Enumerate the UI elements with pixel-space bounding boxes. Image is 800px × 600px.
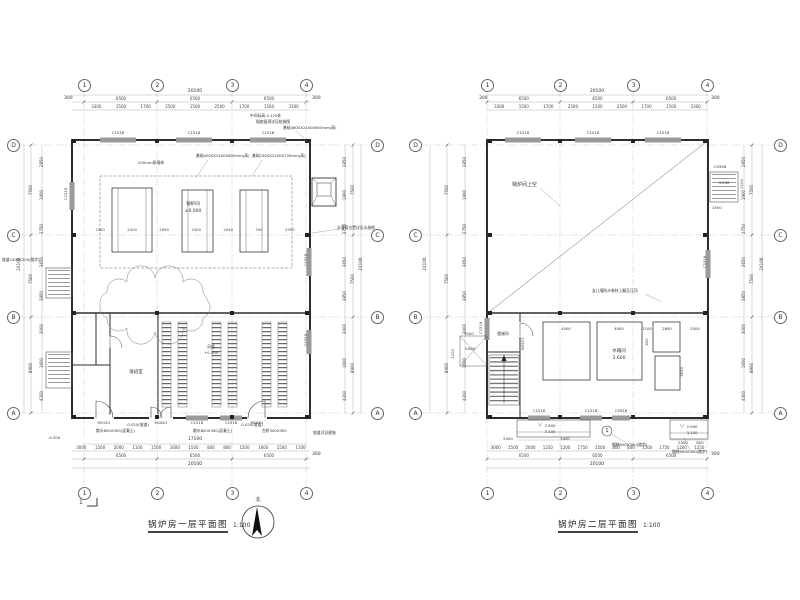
dim-chain-bottom-detail: 3000150020001100150016001500800800150016… xyxy=(72,446,310,450)
dim-landing: 1200 xyxy=(451,345,455,363)
dim-text: 700 xyxy=(255,228,262,232)
dim-edge: 300 xyxy=(312,453,321,458)
dim-chain-top-spans: 650065006500 xyxy=(84,97,306,101)
note-ramp-side: 坡道1500X300(踏步) xyxy=(2,258,40,262)
dim-text: 4300 xyxy=(742,391,746,401)
grid-bubble: 2 xyxy=(151,487,164,500)
plan2-title: 锅炉房二层平面图 xyxy=(558,520,638,533)
plan1-boiler-foundations xyxy=(100,176,292,268)
dim-side-total: 24100 xyxy=(760,255,764,273)
grid-bubble: B xyxy=(7,311,20,324)
dim-edge: 300 xyxy=(711,453,720,458)
dim-text: 1600 xyxy=(258,446,268,450)
dim-text: 1100 xyxy=(132,446,142,450)
level-mark: -0.300 xyxy=(48,436,60,440)
room-label-tank: 水箱间 xyxy=(612,350,626,355)
plan1-title-row: 锅炉房一层平面图1:100 xyxy=(148,512,250,531)
note-foundation: 基础4600X2400X600mm(高) xyxy=(283,126,337,130)
note-parapet: 女儿墙防水卷材上翻至压顶 xyxy=(592,289,638,293)
dim-text: 1500 xyxy=(264,105,274,109)
level-mark: 3.600 xyxy=(465,347,476,351)
dim-text: 1250 xyxy=(543,446,553,450)
level-mark: 2.900 xyxy=(687,425,698,429)
column-marks xyxy=(72,139,707,419)
dim-text: 3850 xyxy=(40,291,44,301)
grid-bubble: 1 xyxy=(481,487,494,500)
dim-text: 8900 xyxy=(351,363,355,373)
dim-text: 1700 xyxy=(543,105,553,109)
dim-text: 3850 xyxy=(343,291,347,301)
dim-canopy: 800 xyxy=(696,441,703,445)
dim-text: 1500 xyxy=(592,105,602,109)
level-mark: ±0.000 xyxy=(185,210,202,215)
dim-text: 6500 xyxy=(116,454,126,458)
dim-bottom-inner: 17100 xyxy=(188,438,202,443)
door-tag: M0921 xyxy=(521,335,525,353)
dim-text: 2750 xyxy=(40,224,44,234)
dim-text: 6500 xyxy=(116,97,126,101)
dim-text: 1700 xyxy=(239,105,249,109)
dim-text: 7500 xyxy=(445,274,449,284)
plan1-title: 锅炉房一层平面图 xyxy=(148,520,228,533)
dim-chain-bottom-spans: 650065006500 xyxy=(487,454,708,458)
plan2-tank-equipment xyxy=(543,322,680,390)
dim-text: 1500 xyxy=(239,446,249,450)
dim-text: 1500 xyxy=(666,105,676,109)
dim-chain-top-detail: 330015001700250015002500170015003300 xyxy=(487,105,708,109)
section-mark-line xyxy=(87,498,97,506)
dim-text: 7500 xyxy=(29,274,33,284)
window-tag: C1518 xyxy=(587,131,599,135)
note-drain: 水落管位置详见水施图 xyxy=(337,226,375,230)
plan1-exterior-ramps xyxy=(46,268,72,388)
dim-text: 1750 xyxy=(578,446,588,450)
dim-text: 1500 xyxy=(151,446,161,450)
plan1-doors xyxy=(94,336,267,422)
dim-text: 2500 xyxy=(568,105,578,109)
dim-text: 6500 xyxy=(666,97,676,101)
level-mark: 3.600 xyxy=(613,357,626,362)
dim-canopy: 2500 xyxy=(678,441,688,445)
cad-linework xyxy=(0,0,800,600)
grid-bubble: 4 xyxy=(300,79,313,92)
window-tag: C1518 xyxy=(703,253,707,271)
note-ramp: -0.020(坡道) xyxy=(240,423,263,427)
window-tag: C0918 xyxy=(615,409,627,413)
room-label-duty: 值班室 xyxy=(129,371,143,376)
grid-bubble: B xyxy=(774,311,787,324)
grid-bubble: C xyxy=(409,229,422,242)
grid-bubble: D xyxy=(409,139,422,152)
blueprint-canvas: 1 2 3 4 1 2 3 4 D C B A D C B A 1 2 3 4 … xyxy=(0,0,800,600)
dim-equip: 3600 xyxy=(680,363,684,381)
grid-bubble: A xyxy=(371,407,384,420)
note-foundation: 基础2300X2200X700mm(高) xyxy=(252,154,306,158)
dim-text: 7500 xyxy=(29,185,33,195)
note-apron: 散水800X300(混凝土) xyxy=(193,429,232,433)
dim-text: 1600 xyxy=(40,358,44,368)
dim-text: 7500 xyxy=(351,185,355,195)
dim-side-total: 24100 xyxy=(423,255,427,273)
note-apron: 散水800X300(混凝土) xyxy=(96,429,135,433)
dim-text: 2850 xyxy=(742,157,746,167)
dim-text: 1500 xyxy=(116,105,126,109)
window-tag: C1518 xyxy=(191,421,203,425)
dim-text: 2500 xyxy=(165,105,175,109)
room-label-duct: 风道 xyxy=(207,345,215,349)
grid-bubble: A xyxy=(774,407,787,420)
room-label-stair: 楼梯间 xyxy=(497,332,508,336)
dim-chain-left-detail: 28501900275036503850300016004300 xyxy=(461,145,470,413)
dim-text: 3000 xyxy=(742,324,746,334)
grid-bubble: A xyxy=(409,407,422,420)
dim-text: 2400 xyxy=(127,228,137,232)
dim-text: 3000 xyxy=(491,446,501,450)
dim-chain-right-spans: 750075008900 xyxy=(748,145,757,413)
grid-bubble: D xyxy=(774,139,787,152)
grid-bubble: 4 xyxy=(701,487,714,500)
window-tag: C1518 xyxy=(517,131,529,135)
grid-bubble: B xyxy=(371,311,384,324)
window-tag: C1518 xyxy=(585,409,597,413)
grid-bubble: C xyxy=(774,229,787,242)
dim-text: 1600 xyxy=(170,446,180,450)
level-mark: 3.100 xyxy=(687,431,698,435)
door-tag: M1521 xyxy=(98,421,111,425)
window-tag: C1518 xyxy=(262,131,274,135)
note-level: 中间标高-0.125处 xyxy=(250,114,281,118)
dim-text: 1600 xyxy=(742,358,746,368)
window-tag: C1518 xyxy=(225,421,237,425)
dim-text: 1500 xyxy=(508,446,518,450)
dim-lines xyxy=(24,95,762,468)
dim-text: 1500 xyxy=(95,446,105,450)
grid-bubble: 3 xyxy=(226,79,239,92)
dim-chain-top-detail: 330015001700250015002500170015003300 xyxy=(84,105,306,109)
dim-text: 3300 xyxy=(91,105,101,109)
window-tag: C1518 xyxy=(479,319,483,337)
window-tag: C1518 xyxy=(64,185,68,203)
dim-text: 8900 xyxy=(750,363,754,373)
dim-text: 2750 xyxy=(742,224,746,234)
dim-text: 1700 xyxy=(641,105,651,109)
dim-equip: 4000 xyxy=(561,327,571,331)
dim-side-total: 24100 xyxy=(359,255,363,273)
dim-chain-bottom-spans: 650065006500 xyxy=(84,454,306,458)
dim-edge: 300 xyxy=(64,97,73,102)
dim-ticks xyxy=(30,101,754,461)
dim-chain-top-spans: 650065006500 xyxy=(487,97,708,101)
plan1-scale: 1:100 xyxy=(233,522,250,529)
dim-text: 3300 xyxy=(494,105,504,109)
dim-text: 6500 xyxy=(519,454,529,458)
dim-text: 6500 xyxy=(264,454,274,458)
room-label-void: 锅炉间上空 xyxy=(512,183,537,188)
note-slope: 坡道详见建施 xyxy=(313,431,336,435)
dim-equip: 2600 xyxy=(662,327,672,331)
dim-text: 3650 xyxy=(40,257,44,267)
room-label-boiler-hall: 锅炉间 xyxy=(186,203,200,208)
dim-text: 7500 xyxy=(750,274,754,284)
grid-bubble: A xyxy=(7,407,20,420)
dim-text: 2850 xyxy=(463,157,467,167)
dim-text: 7500 xyxy=(750,185,754,195)
dim-text: 3000 xyxy=(76,446,86,450)
grid-bubble: 4 xyxy=(701,79,714,92)
dim-text: 6500 xyxy=(264,97,274,101)
dim-platform: 2100 xyxy=(740,175,744,193)
plan2-title-row: 锅炉房二层平面图1:100 xyxy=(558,512,660,531)
dim-text: 3650 xyxy=(343,257,347,267)
door-tag: M1821 xyxy=(155,421,168,425)
dim-text: 6500 xyxy=(666,454,676,458)
north-label: 北 xyxy=(255,498,260,503)
window-tag: C1518 xyxy=(533,409,545,413)
plan1-walls xyxy=(72,140,310,418)
dim-total-bottom: 20100 xyxy=(590,463,604,468)
dim-chain-left-detail: 28501900275036503850300016004300 xyxy=(38,145,47,413)
dim-text: 7500 xyxy=(351,274,355,284)
note-wall: 200mm厚墙体 xyxy=(138,161,164,165)
dim-text: 2500 xyxy=(285,228,295,232)
detail-mark-number: 1 xyxy=(605,429,608,434)
dim-text: 2850 xyxy=(40,157,44,167)
level-mark: +0.300 xyxy=(204,351,218,355)
dim-edge: 300 xyxy=(312,97,321,102)
note-ladder: 钢梯500X300(踏步) xyxy=(672,450,707,454)
dim-text: 1600 xyxy=(463,358,467,368)
grid-bubble: 3 xyxy=(627,79,640,92)
level-mark: 4.000 xyxy=(719,181,730,185)
note-foundation: 基础4000X2400X600mm(高) xyxy=(196,154,250,158)
dim-text: 1500 xyxy=(519,105,529,109)
dim-equip: 4000 xyxy=(614,327,624,331)
plan2-roof-platform xyxy=(710,172,738,202)
dim-text: 6500 xyxy=(592,454,602,458)
dim-chain-left-spans: 750075008900 xyxy=(443,145,452,413)
dim-chain-right-spans: 750075008900 xyxy=(349,145,358,413)
dim-text: 6500 xyxy=(190,97,200,101)
dim-text: 3650 xyxy=(742,257,746,267)
dim-text: 3300 xyxy=(288,105,298,109)
dim-text: 2500 xyxy=(215,105,225,109)
level-mark: 3.100 xyxy=(545,430,556,434)
dim-landing: 1500 xyxy=(464,332,474,336)
grid-bubble: C xyxy=(371,229,384,242)
grid-bubble: 3 xyxy=(226,487,239,500)
dim-text: 3000 xyxy=(40,324,44,334)
dim-text: 6500 xyxy=(592,97,602,101)
dim-text: 800 xyxy=(207,446,215,450)
dim-text: 2650 xyxy=(159,228,169,232)
dim-total-top: 20100 xyxy=(590,90,604,95)
dim-text: 2500 xyxy=(617,105,627,109)
dim-text: 3000 xyxy=(343,324,347,334)
dim-equip: 1100 xyxy=(642,327,652,331)
dim-total-bottom: 20100 xyxy=(188,463,202,468)
dim-text: 1500 xyxy=(188,446,198,450)
note-ramp: -0.020(坡道) xyxy=(126,423,149,427)
dim-chain-hall: 150024002650240029407002500 xyxy=(84,228,306,232)
dim-edge: 300 xyxy=(479,97,488,102)
window-tag: C1518 xyxy=(188,131,200,135)
dim-text: 1500 xyxy=(95,228,105,232)
dim-text: 4300 xyxy=(343,391,347,401)
window-tag: C1518 xyxy=(304,331,308,349)
dim-text: 1900 xyxy=(40,190,44,200)
note-steps: 台阶300X300 xyxy=(262,429,287,433)
dim-text: 3850 xyxy=(742,291,746,301)
dim-equip: 2000 xyxy=(690,327,700,331)
dim-text: 3300 xyxy=(691,105,701,109)
grid-bubble: 4 xyxy=(300,487,313,500)
dim-text: 1100 xyxy=(295,446,305,450)
grid-bubble: 2 xyxy=(151,79,164,92)
window-tag: C1518 xyxy=(112,131,124,135)
dim-text: 1900 xyxy=(343,190,347,200)
dim-text: 2940 xyxy=(223,228,233,232)
dim-text: 4300 xyxy=(463,391,467,401)
dim-platform: 1500 xyxy=(712,206,722,210)
grid-bubble: 1 xyxy=(481,79,494,92)
dim-text: 2000 xyxy=(114,446,124,450)
window-tag: C1518 xyxy=(657,131,669,135)
dim-edge: 300 xyxy=(711,97,720,102)
dim-text: 8900 xyxy=(29,363,33,373)
plan1-chimney xyxy=(312,178,336,206)
dim-text: 6500 xyxy=(190,454,200,458)
dim-text: 2400 xyxy=(191,228,201,232)
note-flue: 烟囱留洞详见结施图 xyxy=(256,120,290,124)
section-mark-number: 1 xyxy=(79,500,83,506)
window-tag: C0906 xyxy=(714,165,726,169)
dim-canopy: 3400 xyxy=(560,437,570,441)
dim-text: 1500 xyxy=(190,105,200,109)
dim-text: 7500 xyxy=(445,185,449,195)
dim-text: 1200 xyxy=(560,446,570,450)
dim-text: 1500 xyxy=(277,446,287,450)
grid-bubble: D xyxy=(7,139,20,152)
dim-text: 800 xyxy=(223,446,231,450)
grid-bubble: 3 xyxy=(627,487,640,500)
plan1-air-ducts xyxy=(162,322,287,407)
note-ladder: 钢梯500X300(踏步) xyxy=(612,443,647,447)
plan2-door xyxy=(518,322,534,337)
dim-text: 6500 xyxy=(519,97,529,101)
dim-canopy: 5000 xyxy=(503,437,513,441)
plan1-windows xyxy=(70,138,312,421)
dim-text: 2000 xyxy=(525,446,535,450)
revision-cloud xyxy=(100,266,210,344)
plan2-stair xyxy=(489,355,519,405)
grid-bubble: 2 xyxy=(554,487,567,500)
dim-text: 1600 xyxy=(343,358,347,368)
dim-text: 8900 xyxy=(445,363,449,373)
dim-text: 4300 xyxy=(40,391,44,401)
level-mark: 2.900 xyxy=(545,424,556,428)
dim-text: 2850 xyxy=(343,157,347,167)
plan2-windows xyxy=(485,138,711,421)
grid-bubble: 1 xyxy=(78,79,91,92)
dim-text: 3650 xyxy=(463,257,467,267)
window-tag: C1518 xyxy=(304,251,308,269)
dim-text: 1700 xyxy=(141,105,151,109)
dim-text: 1900 xyxy=(463,190,467,200)
plan2-scale: 1:100 xyxy=(643,522,660,529)
dim-text: 2750 xyxy=(463,224,467,234)
grid-bubble: C xyxy=(7,229,20,242)
dim-text: 1500 xyxy=(595,446,605,450)
dim-total-top: 20100 xyxy=(188,90,202,95)
dim-text: 1750 xyxy=(659,446,669,450)
dim-chain-left-spans: 750075008900 xyxy=(27,145,36,413)
grid-bubble: D xyxy=(371,139,384,152)
dim-text: 3850 xyxy=(463,291,467,301)
grid-bubble: 2 xyxy=(554,79,567,92)
dim-equip: 600 xyxy=(645,333,649,351)
grid-bubble: B xyxy=(409,311,422,324)
plan2-void-diagonal xyxy=(489,142,706,312)
